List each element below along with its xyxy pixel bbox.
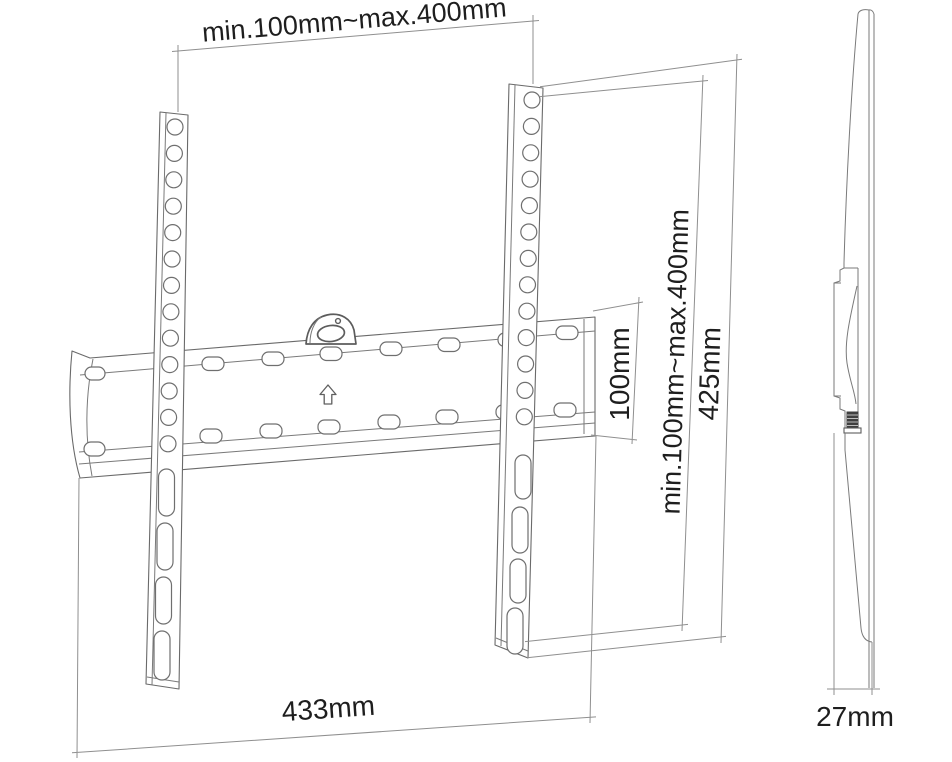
- vesa-width-label: min.100mm~max.400mm: [201, 0, 508, 48]
- side-rail-front-profile-lower: [845, 433, 872, 642]
- side-view: [834, 10, 874, 688]
- side-rail-curve-in-channel: [846, 286, 857, 404]
- plate-height-label: 100mm: [604, 327, 635, 420]
- locking-screw: [844, 412, 861, 433]
- dimension-vesa-width: min.100mm~max.400mm: [172, 0, 539, 112]
- side-rail-top-cap: [858, 10, 874, 14]
- locking-screw-base: [844, 428, 861, 433]
- level-dot: [336, 319, 341, 324]
- right-vesa-rail: [495, 84, 543, 658]
- vesa-height-label: min.100mm~max.400mm: [655, 209, 694, 515]
- dimension-plate-height: 100mm: [591, 297, 643, 444]
- depth-label: 27mm: [816, 701, 894, 732]
- dimension-depth: 27mm: [816, 433, 894, 732]
- plate-width-label: 433mm: [281, 690, 376, 727]
- level-fixture: [306, 314, 356, 344]
- wall-mount-dimension-diagram: min.100mm~max.400mm min.100mm~max.400mm …: [0, 0, 952, 762]
- front-view: [70, 84, 595, 689]
- diagram-canvas: min.100mm~max.400mm min.100mm~max.400mm …: [0, 0, 952, 762]
- rail-height-label: 425mm: [693, 327, 727, 421]
- side-rail-front-profile-upper: [844, 14, 858, 263]
